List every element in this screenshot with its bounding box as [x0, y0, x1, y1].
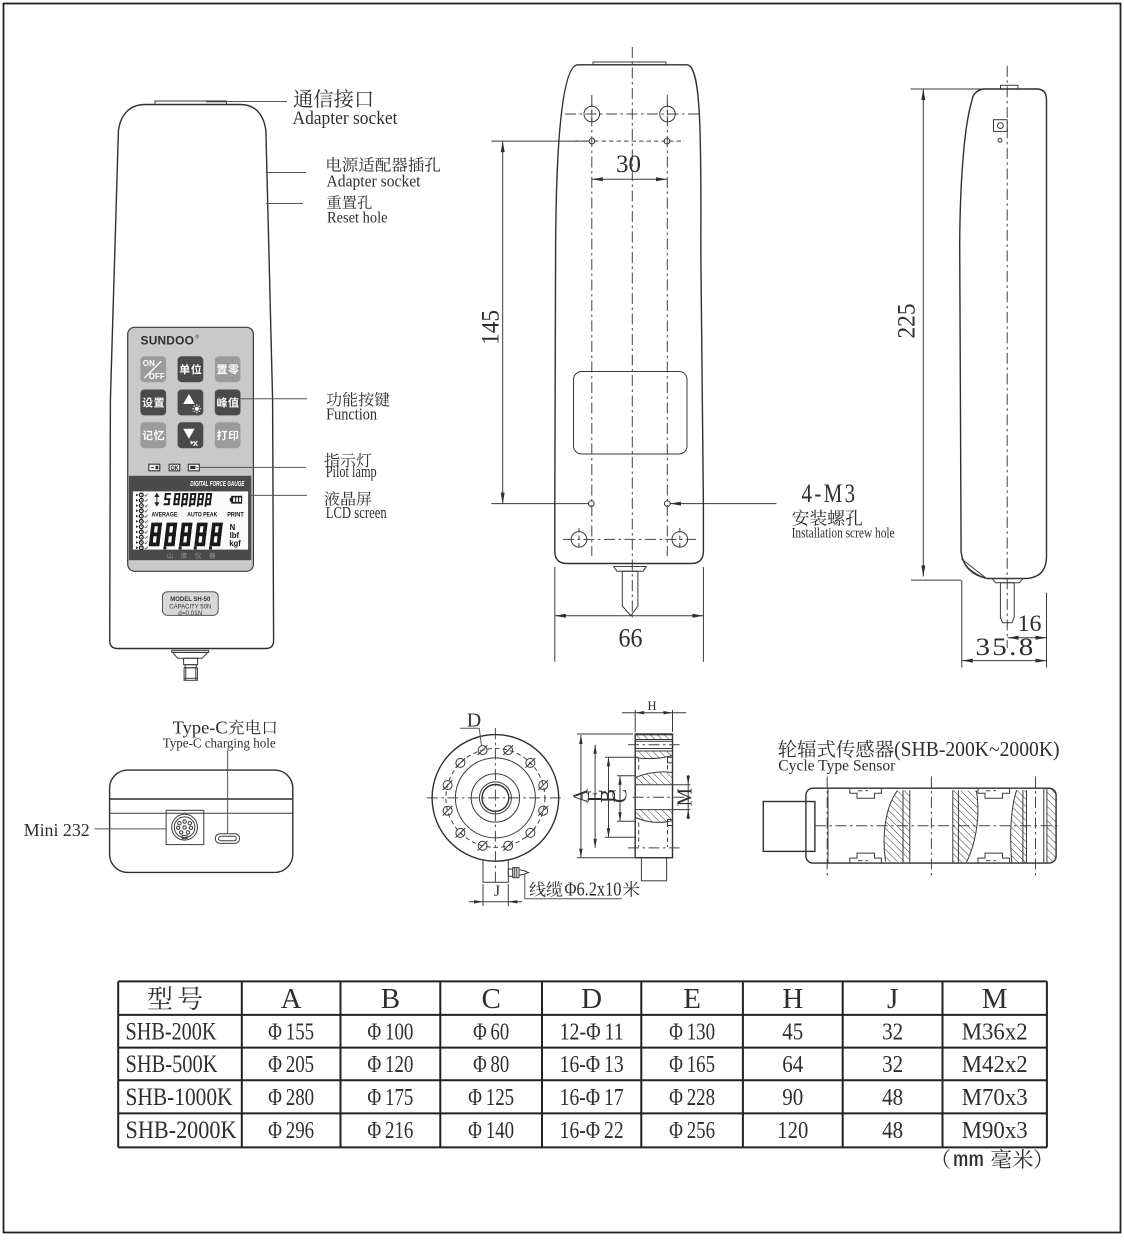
svg-text:Type-C charging hole: Type-C charging hole — [163, 736, 276, 751]
svg-text:Φ 228: Φ 228 — [669, 1085, 715, 1111]
svg-text:32: 32 — [882, 1052, 903, 1078]
svg-text:D: D — [581, 983, 602, 1015]
svg-text:Φ 165: Φ 165 — [669, 1052, 715, 1078]
svg-text:Φ 296: Φ 296 — [268, 1118, 314, 1144]
svg-text:ON: ON — [143, 359, 155, 368]
svg-text:Function: Function — [326, 404, 377, 423]
svg-text:Φ 175: Φ 175 — [367, 1085, 413, 1111]
svg-text:SHB-500K: SHB-500K — [126, 1051, 218, 1078]
svg-text:Φ 100: Φ 100 — [367, 1020, 413, 1046]
svg-text:M: M — [673, 788, 697, 807]
svg-text:M70x3: M70x3 — [962, 1085, 1028, 1111]
svg-text:Adapter socket: Adapter socket — [293, 109, 399, 129]
svg-text:LCD screen: LCD screen — [326, 503, 387, 522]
svg-text:Cycle Type Sensor: Cycle Type Sensor — [778, 756, 896, 774]
svg-text:30: 30 — [616, 151, 641, 178]
svg-text:145: 145 — [477, 310, 504, 345]
svg-text:Φ 120: Φ 120 — [367, 1052, 413, 1078]
svg-text:mm: mm — [953, 1150, 984, 1173]
svg-text:d=0.01N: d=0.01N — [178, 611, 202, 617]
svg-text:Φ 130: Φ 130 — [669, 1020, 715, 1046]
svg-text:48: 48 — [882, 1118, 903, 1144]
svg-text:Φ 280: Φ 280 — [268, 1085, 314, 1111]
svg-text:Φ 256: Φ 256 — [669, 1118, 715, 1144]
svg-text:225: 225 — [894, 304, 921, 339]
svg-text:MODEL SH-50: MODEL SH-50 — [170, 596, 211, 603]
svg-text:32: 32 — [882, 1020, 903, 1046]
svg-text:SHB-2000K: SHB-2000K — [126, 1117, 237, 1144]
svg-text:E: E — [683, 983, 701, 1015]
svg-text:SHB-1000K: SHB-1000K — [126, 1084, 233, 1111]
svg-text:M42x2: M42x2 — [962, 1052, 1028, 1078]
svg-text:Pilot lamp: Pilot lamp — [326, 462, 377, 481]
svg-text:Φ 155: Φ 155 — [268, 1020, 314, 1046]
svg-text:4-M3: 4-M3 — [802, 479, 858, 508]
svg-text:H: H — [782, 983, 803, 1015]
svg-text:J: J — [887, 983, 898, 1015]
svg-text:90: 90 — [782, 1085, 803, 1111]
svg-text:66: 66 — [619, 624, 643, 653]
svg-text:Φ 125: Φ 125 — [468, 1085, 514, 1111]
svg-text:Φ 205: Φ 205 — [268, 1052, 314, 1078]
svg-text:M90x3: M90x3 — [962, 1118, 1028, 1144]
svg-text:16: 16 — [1018, 611, 1042, 636]
svg-text:B: B — [381, 983, 400, 1015]
svg-text:35.8: 35.8 — [976, 634, 1036, 661]
svg-text:Φ 60: Φ 60 — [473, 1020, 509, 1046]
svg-text:Installation screw hole: Installation screw hole — [792, 525, 895, 541]
svg-text:OFF: OFF — [149, 372, 165, 381]
svg-text:Mini 232: Mini 232 — [24, 820, 90, 840]
svg-text:Φ 140: Φ 140 — [468, 1118, 514, 1144]
svg-text:16-Φ 13: 16-Φ 13 — [560, 1052, 624, 1078]
svg-text:Φ6.2x10: Φ6.2x10 — [565, 879, 622, 901]
svg-text:A: A — [281, 983, 302, 1015]
svg-text:OK: OK — [171, 465, 179, 472]
svg-text:(SHB-200K~2000K): (SHB-200K~2000K) — [894, 737, 1060, 761]
svg-text:®: ® — [195, 334, 199, 341]
svg-text:AUTO PEAK: AUTO PEAK — [187, 512, 217, 519]
svg-text:M: M — [982, 983, 1008, 1015]
svg-text:PRINT: PRINT — [227, 512, 244, 519]
svg-text:SUNDOO: SUNDOO — [141, 334, 195, 348]
svg-text:64: 64 — [782, 1052, 803, 1078]
svg-text:Φ 216: Φ 216 — [367, 1118, 413, 1144]
svg-text:AVERAGE: AVERAGE — [152, 512, 178, 519]
svg-text:45: 45 — [782, 1020, 803, 1046]
svg-text:kgf: kgf — [229, 539, 241, 548]
svg-text:16-Φ 17: 16-Φ 17 — [560, 1085, 624, 1111]
svg-text:Reset hole: Reset hole — [327, 210, 388, 227]
svg-text:Type-C: Type-C — [173, 717, 228, 737]
svg-text:M36x2: M36x2 — [962, 1020, 1028, 1046]
svg-text:Adapter socket: Adapter socket — [327, 172, 421, 191]
svg-text:SHB-200K: SHB-200K — [126, 1019, 217, 1046]
svg-text:CAPACITY 50N: CAPACITY 50N — [169, 605, 211, 611]
svg-text:DIGITAL FORCE GAUGE: DIGITAL FORCE GAUGE — [190, 479, 245, 488]
svg-text:C: C — [608, 789, 632, 803]
svg-text:16-Φ 22: 16-Φ 22 — [560, 1118, 624, 1144]
svg-text:H: H — [647, 699, 656, 713]
svg-text:C: C — [481, 983, 500, 1015]
svg-text:120: 120 — [777, 1118, 808, 1144]
svg-text:12-Φ 11: 12-Φ 11 — [560, 1020, 624, 1046]
svg-text:48: 48 — [882, 1085, 903, 1111]
svg-text:J: J — [494, 883, 500, 900]
svg-text:Φ 80: Φ 80 — [473, 1052, 509, 1078]
